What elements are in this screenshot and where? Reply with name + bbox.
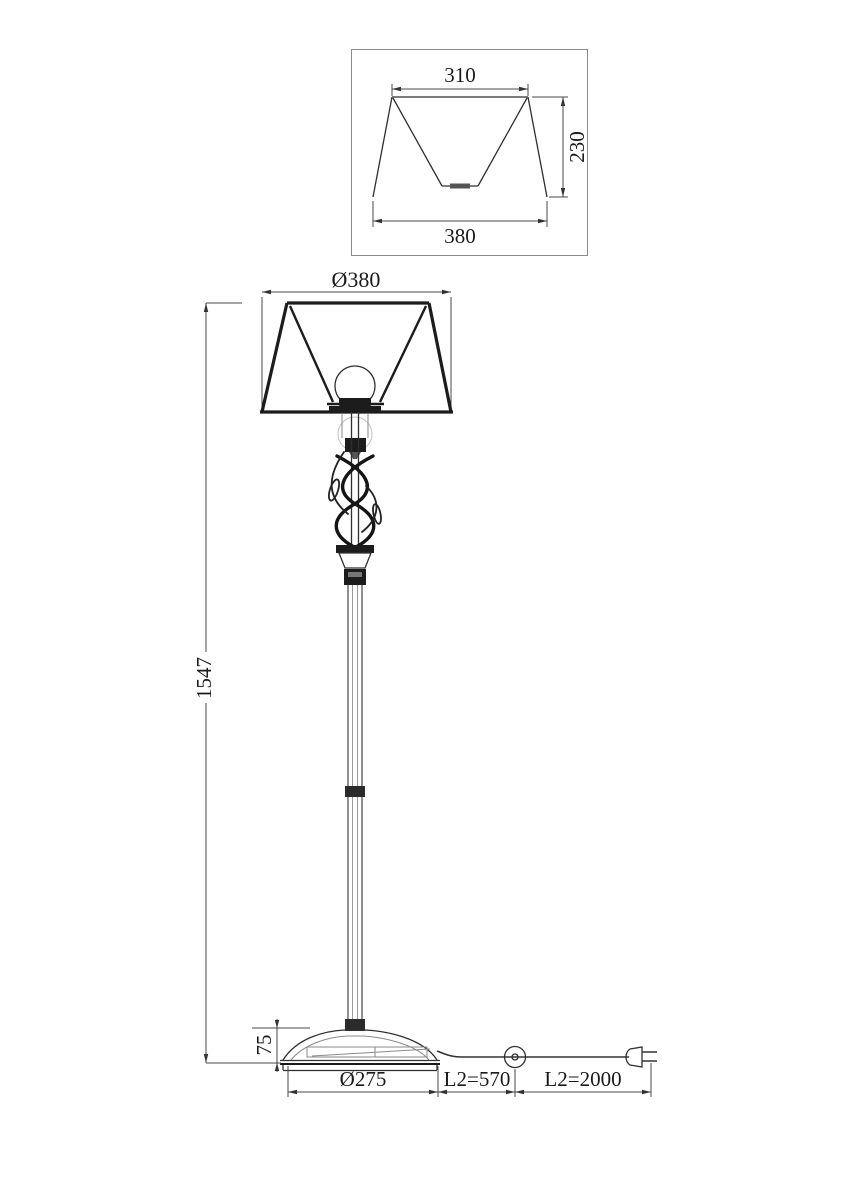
- dim-label-shade-diameter: Ø380: [332, 267, 381, 292]
- dim-shade-bottom-width: 380: [373, 201, 547, 248]
- dim-shade-height: 230: [532, 97, 589, 197]
- detail-shade-fitting: [450, 184, 470, 189]
- arrowhead: [515, 1090, 524, 1094]
- arrowhead: [288, 1090, 297, 1094]
- arrowhead: [392, 87, 401, 91]
- dim-label-total-height: 1547: [192, 657, 216, 699]
- pole-joint-middle: [345, 786, 365, 797]
- lampshade-outline: [260, 303, 453, 412]
- arrowhead: [204, 1054, 208, 1063]
- arrowhead: [561, 97, 565, 106]
- dim-label-cord-to-switch: L2=570: [444, 1067, 511, 1091]
- arrowhead: [519, 87, 528, 91]
- arrowhead: [262, 290, 271, 294]
- technical-drawing-page: 310 230 380 Ø380: [0, 0, 848, 1200]
- socket-lower: [345, 438, 366, 452]
- arrowhead: [275, 1020, 279, 1028]
- base-dome-inner: [291, 1036, 429, 1060]
- arrowhead: [204, 303, 208, 312]
- lampshade-silhouette: [260, 303, 453, 412]
- base-dome: [283, 1030, 437, 1060]
- dim-bottom-chain: Ø275 L2=570 L2=2000: [288, 1063, 651, 1097]
- arrowhead: [429, 1090, 438, 1094]
- arrowhead: [275, 1063, 279, 1071]
- plug-prongs: [642, 1052, 657, 1061]
- dim-label-base-diameter: Ø275: [340, 1067, 387, 1091]
- arrowhead: [373, 219, 382, 223]
- ornament-rod: [352, 412, 359, 548]
- arrowhead: [561, 188, 565, 197]
- lamp-base: [280, 1030, 440, 1071]
- arrowhead: [442, 290, 451, 294]
- socket-cup: [342, 414, 368, 438]
- dim-label-top-width: 310: [444, 63, 476, 87]
- dim-shade-top-width: 310: [392, 63, 528, 96]
- dim-label-bottom-width: 380: [444, 224, 476, 248]
- socket-tip: [349, 452, 361, 459]
- base-plate-detail: [312, 1047, 430, 1057]
- arrowhead: [538, 219, 547, 223]
- detail-shade-outline: [373, 97, 547, 197]
- dim-shade-diameter: Ø380: [262, 267, 451, 409]
- dim-label-cord-to-plug: L2=2000: [544, 1067, 621, 1091]
- dim-total-height: 1547: [192, 303, 242, 1063]
- dim-label-base-height: 75: [252, 1035, 276, 1056]
- dim-label-shade-height: 230: [565, 131, 589, 163]
- power-cord-assembly: [437, 1047, 657, 1068]
- pole-joint-lower: [345, 1019, 365, 1031]
- detail-view-lampshade: 310 230 380: [352, 50, 590, 256]
- ornament-leaf-left: [327, 478, 341, 501]
- arrowhead: [642, 1090, 651, 1094]
- lampshade-inner-frame: [290, 306, 426, 404]
- twist-ornament: [327, 412, 383, 548]
- power-cord: [437, 1051, 629, 1057]
- technical-drawing-canvas: 310 230 380 Ø380: [0, 0, 848, 1200]
- ornament-collar: [336, 545, 374, 585]
- lamp-pole: [345, 585, 365, 1031]
